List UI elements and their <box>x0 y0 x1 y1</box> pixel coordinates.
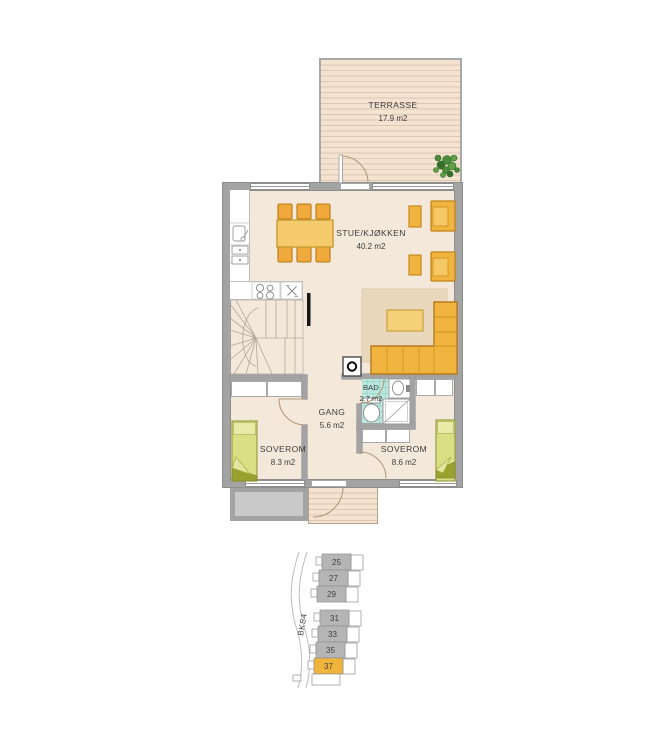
room-name: BAD <box>346 383 396 392</box>
room-name: STUE/KJØKKEN <box>321 228 421 238</box>
site-block-label: BKS4 <box>296 613 309 637</box>
site-unit-tail <box>312 674 340 685</box>
site-unit-number: 25 <box>332 558 341 567</box>
gang-label: GANG 5.6 m2 <box>302 407 362 430</box>
floorplan-page: TERRASSE 17.9 m2 STUE/KJØKKEN 40.2 m2 BA… <box>0 0 650 750</box>
stove-icon <box>252 282 280 299</box>
soverom-right-label: SOVEROM 8.6 m2 <box>364 444 444 467</box>
chimney-icon <box>343 357 361 376</box>
room-name: SOVEROM <box>243 444 323 454</box>
bad-label: BAD 2.7 m2 <box>346 383 396 403</box>
site-unit-number: 37 <box>324 662 333 671</box>
room-area: 2.7 m2 <box>346 394 396 403</box>
site-unit-number: 27 <box>329 574 338 583</box>
room-name: GANG <box>302 407 362 417</box>
site-unit-number: 31 <box>330 614 339 623</box>
site-unit-number: 33 <box>328 630 337 639</box>
room-area: 40.2 m2 <box>321 242 421 251</box>
stue-label: STUE/KJØKKEN 40.2 m2 <box>321 228 421 251</box>
room-area: 17.9 m2 <box>343 114 443 123</box>
site-plan: BKS4 <box>280 550 375 690</box>
room-name: TERRASSE <box>343 100 443 110</box>
side-table-icon <box>409 206 421 227</box>
terrasse-label: TERRASSE 17.9 m2 <box>343 100 443 123</box>
entrance-door-arc <box>313 487 343 517</box>
room-area: 8.6 m2 <box>364 458 444 467</box>
site-unit-number: 29 <box>327 590 336 599</box>
plant-icon <box>434 155 460 178</box>
sink-icon <box>233 226 248 241</box>
site-unit-number: 35 <box>326 646 335 655</box>
site-outbuilding <box>293 675 301 681</box>
room-area: 5.6 m2 <box>302 421 362 430</box>
stairs-icon <box>230 300 303 374</box>
oven-icon <box>232 246 248 264</box>
terrace-door-arc <box>339 155 368 183</box>
dishwasher-icon <box>281 282 302 299</box>
armchair-icon <box>431 252 455 281</box>
armchair-icon <box>431 201 455 231</box>
soverom-left-label: SOVEROM 8.3 m2 <box>243 444 323 467</box>
room-name: SOVEROM <box>364 444 444 454</box>
side-table-icon <box>409 255 421 275</box>
stair-railing <box>307 293 311 326</box>
coffee-table-icon <box>387 310 423 331</box>
room-area: 8.3 m2 <box>243 458 323 467</box>
